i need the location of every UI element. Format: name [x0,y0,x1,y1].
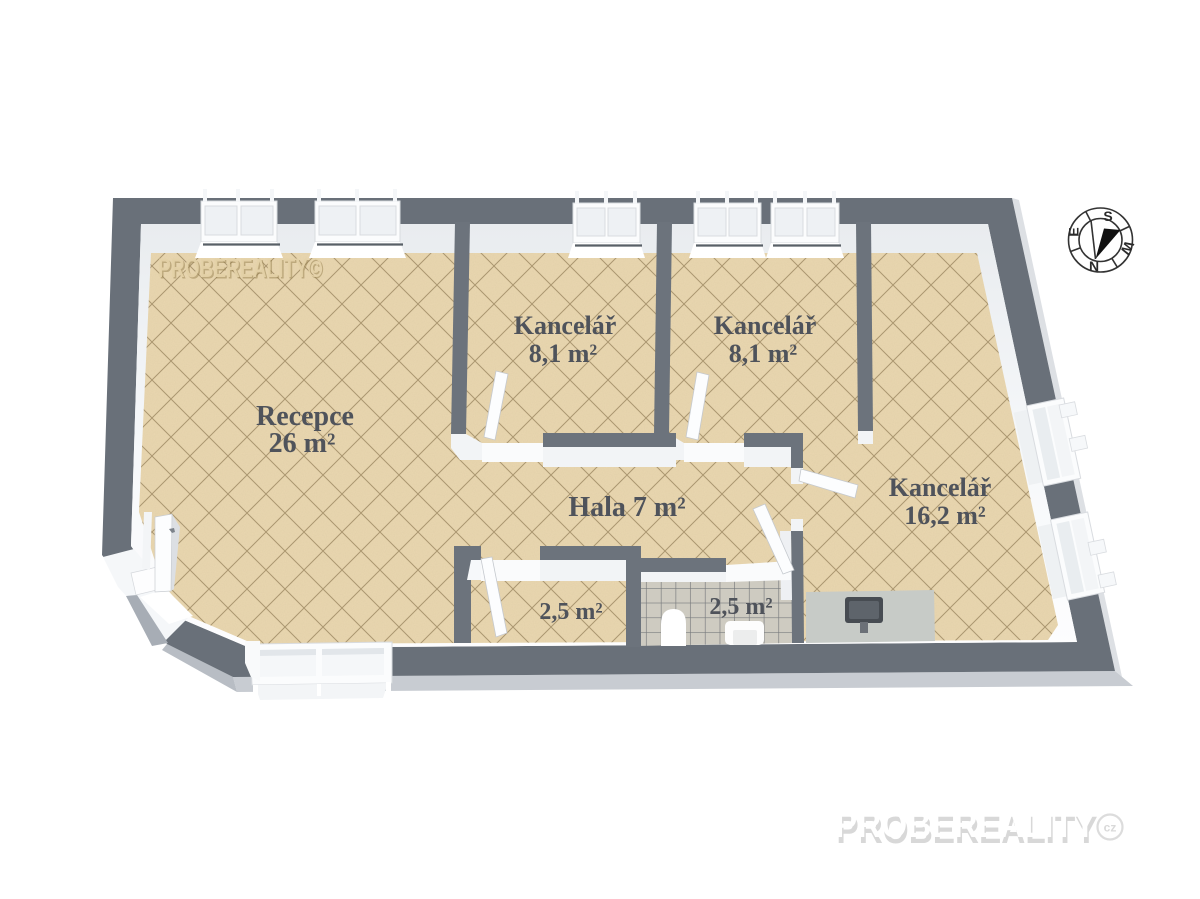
svg-text:Kancelář: Kancelář [514,311,617,340]
svg-text:8,1 m²: 8,1 m² [729,339,798,368]
svg-text:16,2 m²: 16,2 m² [904,501,986,530]
svg-text:8,1 m²: 8,1 m² [529,339,598,368]
svg-text:2,5 m²: 2,5 m² [709,594,772,620]
svg-text:E: E [1066,227,1082,236]
svg-text:N: N [1089,258,1099,274]
svg-text:PROBEREALITY: PROBEREALITY [835,804,1096,846]
svg-text:Kancelář: Kancelář [889,473,992,502]
svg-text:Hala 7 m²: Hala 7 m² [568,492,685,523]
svg-text:S: S [1103,208,1112,224]
svg-text:Kancelář: Kancelář [714,311,817,340]
svg-text:2,5 m²: 2,5 m² [539,599,602,625]
svg-text:26 m²: 26 m² [269,428,336,459]
svg-text:cz: cz [1104,821,1117,835]
